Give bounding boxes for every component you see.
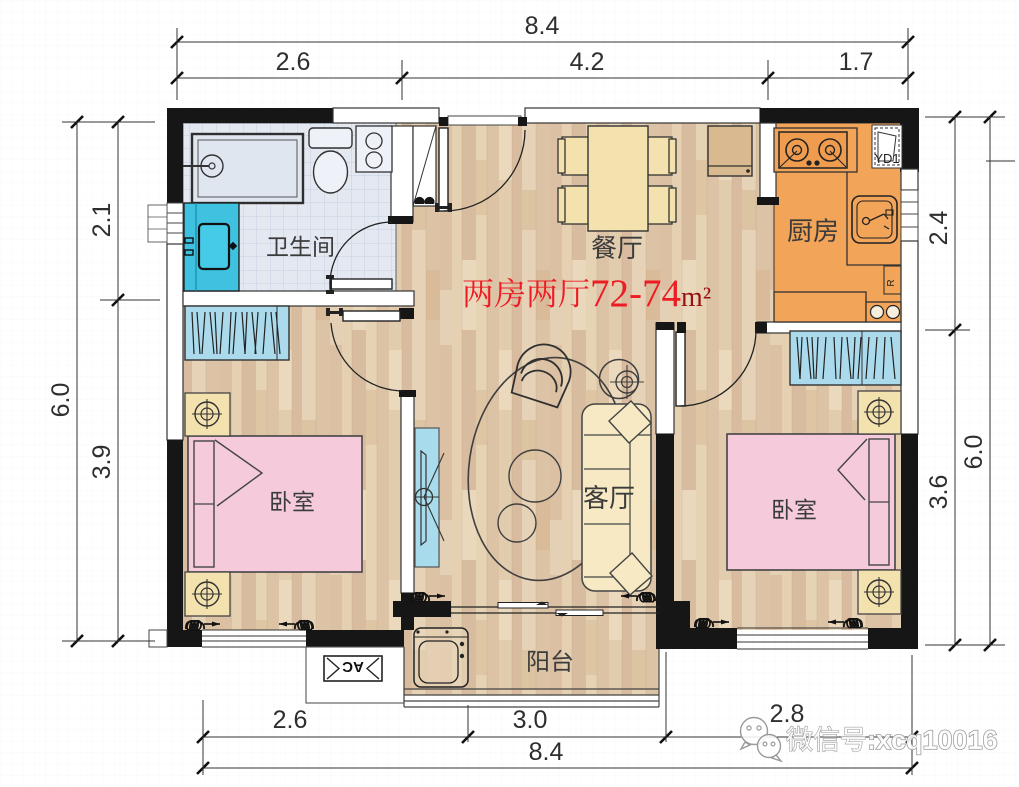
svg-text:6.0: 6.0 <box>960 435 988 470</box>
svg-text:3.0: 3.0 <box>513 706 548 734</box>
svg-text:3.9: 3.9 <box>88 445 116 480</box>
svg-text:2.1: 2.1 <box>88 203 116 238</box>
svg-text:1.7: 1.7 <box>839 48 874 76</box>
svg-text:2.4: 2.4 <box>925 211 953 246</box>
svg-text:R: R <box>886 279 897 286</box>
svg-text:m²: m² <box>681 282 711 313</box>
svg-text:8.4: 8.4 <box>525 12 560 40</box>
svg-text:YD1: YD1 <box>874 151 899 166</box>
svg-text:2.6: 2.6 <box>273 706 308 734</box>
svg-text:72-74: 72-74 <box>590 272 681 315</box>
svg-text:2.6: 2.6 <box>276 48 311 76</box>
svg-text:AC: AC <box>342 658 364 675</box>
svg-text:3.6: 3.6 <box>925 475 953 510</box>
svg-text:8.4: 8.4 <box>529 738 564 766</box>
svg-text:6.0: 6.0 <box>47 383 75 418</box>
svg-text:2.8: 2.8 <box>770 700 805 728</box>
svg-text::xcq10016: :xcq10016 <box>867 725 998 755</box>
svg-text:4.2: 4.2 <box>570 48 605 76</box>
